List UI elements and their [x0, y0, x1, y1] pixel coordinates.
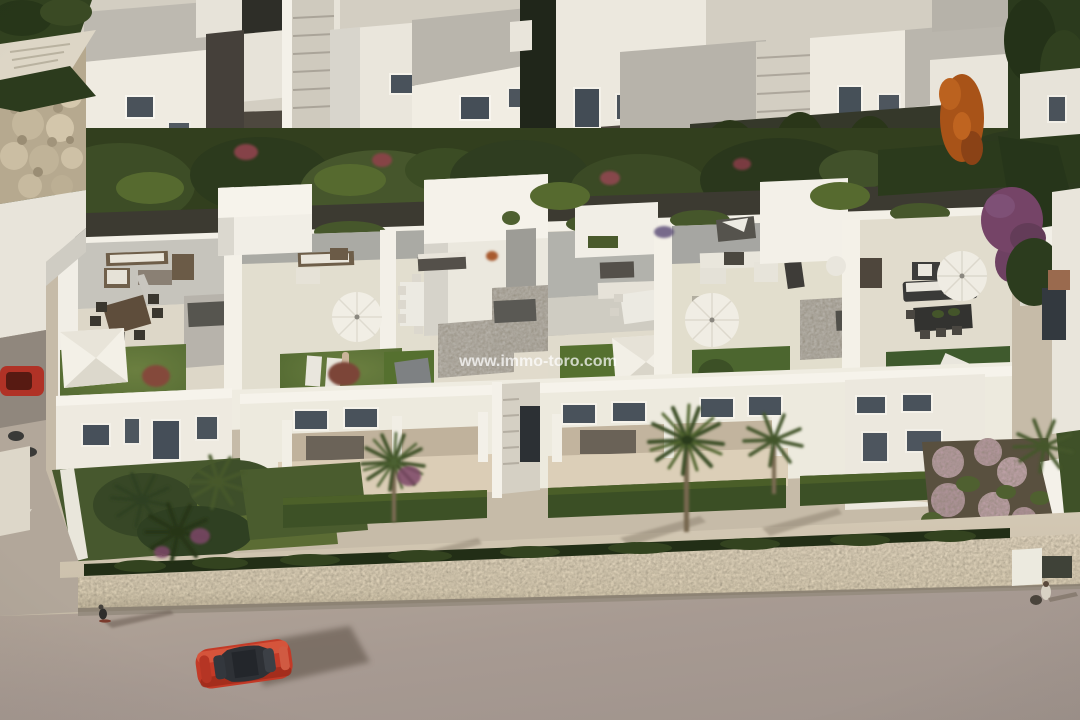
- svg-text:www.immo-toro.com: www.immo-toro.com: [458, 353, 617, 370]
